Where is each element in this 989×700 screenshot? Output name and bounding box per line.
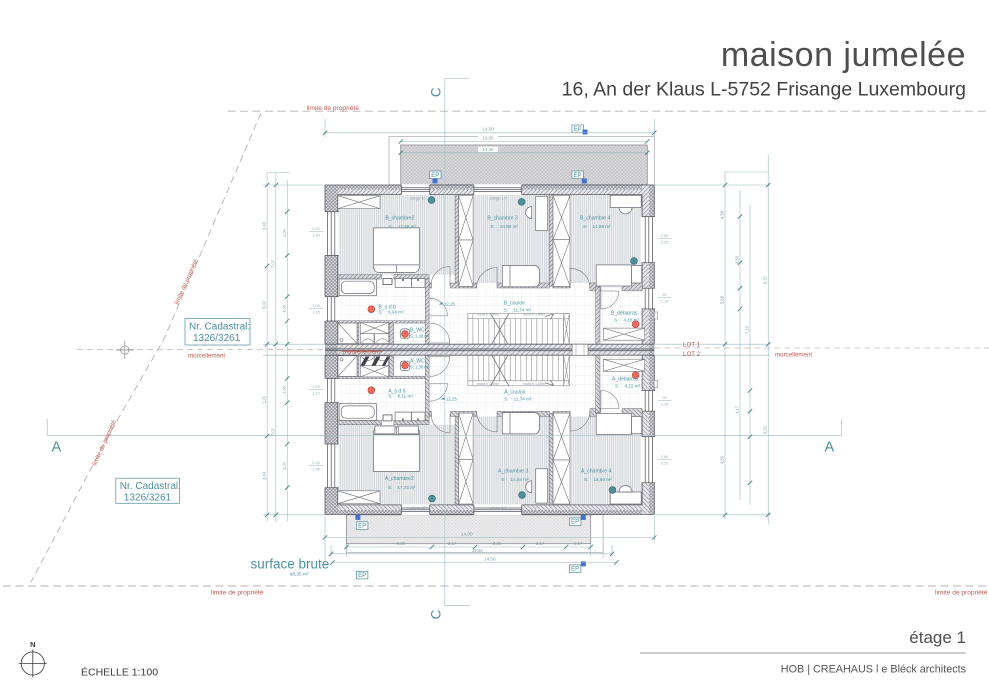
svg-text:EP: EP: [571, 520, 579, 526]
svg-text:1,15: 1,15: [661, 299, 669, 304]
svg-text:14,50: 14,50: [484, 557, 496, 562]
svg-text:morcellement: morcellement: [775, 352, 812, 359]
svg-text:2,00: 2,00: [282, 461, 287, 469]
svg-text:3,43: 3,43: [262, 471, 267, 480]
svg-text:1,40: 1,40: [312, 233, 320, 238]
svg-text:EP: EP: [358, 573, 366, 579]
svg-text:LOT 1: LOT 1: [683, 342, 701, 349]
svg-text:S: 14,96 m²: S: 14,96 m²: [583, 224, 611, 229]
svg-text:1,00: 1,00: [282, 385, 287, 393]
svg-text:S: 11,74 m²: S: 11,74 m²: [504, 397, 532, 402]
svg-text:±2,25: ±2,25: [444, 302, 456, 307]
svg-text:2,00: 2,00: [661, 233, 669, 238]
svg-text:2,00: 2,00: [282, 228, 287, 236]
svg-text:A_débarras: A_débarras: [612, 377, 639, 383]
svg-text:S: 4,22 m²: S: 4,22 m²: [615, 384, 640, 389]
svg-text:maison jumelée: maison jumelée: [721, 36, 966, 74]
svg-text:limite de propriété: limite de propriété: [307, 105, 360, 112]
svg-text:HOB | CREAHAUS l e Bléck archi: HOB | CREAHAUS l e Bléck architects: [781, 664, 967, 676]
svg-text:LOT 2: LOT 2: [683, 351, 701, 358]
svg-text:S: 17,68 m²: S: 17,68 m²: [388, 224, 416, 229]
svg-text:1,00: 1,00: [282, 304, 287, 312]
svg-text:14,00: 14,00: [482, 127, 494, 132]
svg-text:S: 8,04 m²: S: 8,04 m²: [379, 310, 404, 315]
svg-text:morcellement: morcellement: [343, 348, 380, 355]
svg-text:3,43: 3,43: [262, 221, 267, 230]
svg-text:2,25: 2,25: [661, 461, 669, 466]
svg-text:étage 1: étage 1: [909, 628, 966, 647]
svg-text:6,31: 6,31: [763, 425, 768, 434]
svg-text:S: 14,94 m²: S: 14,94 m²: [584, 477, 612, 482]
svg-text:2,00: 2,00: [312, 226, 320, 231]
svg-text:2,00: 2,00: [661, 454, 669, 459]
svg-text:S: 1,36 m²: S: 1,36 m²: [410, 365, 430, 370]
svg-text:A_chambre 3: A_chambre 3: [498, 468, 528, 474]
svg-text:7,07: 7,07: [270, 259, 275, 268]
svg-text:1326/3261: 1326/3261: [193, 333, 241, 344]
svg-text:A: A: [825, 440, 835, 456]
svg-text:1,17: 1,17: [574, 541, 583, 546]
svg-text:B_chambre2: B_chambre2: [385, 216, 414, 222]
svg-text:4,58: 4,58: [719, 210, 724, 219]
svg-text:98,35 m²: 98,35 m²: [290, 572, 309, 578]
svg-text:C: C: [429, 87, 444, 97]
svg-text:16, An der Klaus L-5752 Frisan: 16, An der Klaus L-5752 Frisange Luxembo…: [562, 79, 966, 101]
svg-text:1,40: 1,40: [312, 467, 320, 472]
svg-text:3,02: 3,02: [262, 300, 267, 309]
svg-text:4,50: 4,50: [734, 255, 739, 264]
svg-text:S: 1,36 m²: S: 1,36 m²: [410, 334, 430, 339]
svg-text:mont.h 1,90m: mont.h 1,90m: [477, 382, 499, 386]
svg-text:4,86: 4,86: [719, 455, 724, 464]
svg-text:19,50: 19,50: [472, 548, 484, 553]
svg-text:3,17: 3,17: [448, 541, 457, 546]
svg-text:surface brute: surface brute: [251, 557, 330, 572]
svg-text:7,07: 7,07: [270, 427, 275, 436]
svg-text:B_débarras: B_débarras: [611, 311, 638, 317]
svg-text:limite de propriété: limite de propriété: [211, 590, 264, 597]
svg-text:B_chambre 3: B_chambre 3: [487, 216, 517, 222]
svg-text:S: 17,73 m²: S: 17,73 m²: [388, 485, 416, 490]
svg-text:B_chambre 4: B_chambre 4: [580, 216, 610, 222]
svg-text:morcellement: morcellement: [188, 353, 225, 360]
svg-text:S: 8,11 m²: S: 8,11 m²: [388, 394, 413, 399]
svg-text:1,15: 1,15: [312, 391, 320, 396]
svg-text:1326/3261: 1326/3261: [124, 493, 172, 504]
svg-text:N: N: [30, 640, 35, 649]
svg-text:1,00: 1,00: [312, 303, 320, 308]
svg-text:mont.h 1,90m: mont.h 1,90m: [477, 313, 499, 317]
svg-text:3,86: 3,86: [493, 541, 502, 546]
svg-text:14,30: 14,30: [483, 147, 495, 152]
svg-text:6,31: 6,31: [763, 275, 768, 284]
svg-text:allège 1,0: allège 1,0: [490, 506, 506, 510]
svg-text:S: 14,94 m²: S: 14,94 m²: [501, 477, 529, 482]
svg-text:1,00: 1,00: [312, 384, 320, 389]
svg-text:limite de propriété: limite de propriété: [935, 590, 988, 597]
svg-text:6,00: 6,00: [397, 541, 406, 546]
svg-text:EP: EP: [574, 127, 582, 133]
svg-text:Nr. Cadastral:: Nr. Cadastral:: [120, 481, 181, 492]
svg-text:EP: EP: [574, 173, 582, 179]
svg-text:2,00: 2,00: [312, 460, 320, 465]
svg-text:A: A: [52, 440, 62, 456]
svg-text:S: 4,16 m²: S: 4,16 m²: [614, 318, 639, 323]
svg-text:allège 1,0: allège 1,0: [490, 197, 506, 201]
svg-text:EP: EP: [431, 173, 439, 179]
svg-text:±2,25: ±2,25: [446, 397, 458, 402]
svg-text:2,25: 2,25: [661, 240, 669, 245]
svg-text:mont.h 1,80m: mont.h 1,80m: [523, 313, 545, 317]
svg-text:1,21: 1,21: [262, 395, 267, 404]
svg-text:C: C: [429, 609, 444, 619]
svg-text:1,15: 1,15: [312, 310, 320, 315]
svg-text:A_couloir: A_couloir: [504, 390, 526, 396]
svg-text:EP: EP: [571, 567, 579, 573]
svg-text:1,15: 1,15: [661, 402, 669, 407]
svg-text:14,00: 14,00: [483, 135, 495, 140]
svg-text:ÉCHELLE 1:100: ÉCHELLE 1:100: [81, 666, 158, 679]
svg-text:Nr. Cadastral:: Nr. Cadastral:: [189, 322, 250, 333]
svg-text:mont.h 1,80m: mont.h 1,80m: [523, 382, 545, 386]
svg-text:S: 14,96 m²: S: 14,96 m²: [490, 224, 518, 229]
svg-text:allège 10: allège 10: [410, 197, 425, 201]
svg-text:allège 10: allège 10: [410, 506, 425, 510]
svg-text:EP: EP: [358, 524, 366, 530]
svg-text:A_chambre2: A_chambre2: [385, 476, 414, 482]
svg-text:7,10: 7,10: [744, 325, 749, 334]
svg-text:3,17: 3,17: [536, 541, 545, 546]
svg-text:4,17: 4,17: [734, 405, 739, 414]
svg-text:B_couloir: B_couloir: [504, 301, 526, 307]
svg-text:14,00: 14,00: [461, 532, 473, 537]
svg-text:5,88: 5,88: [719, 295, 724, 304]
svg-text:A_chambre 4: A_chambre 4: [581, 468, 611, 474]
